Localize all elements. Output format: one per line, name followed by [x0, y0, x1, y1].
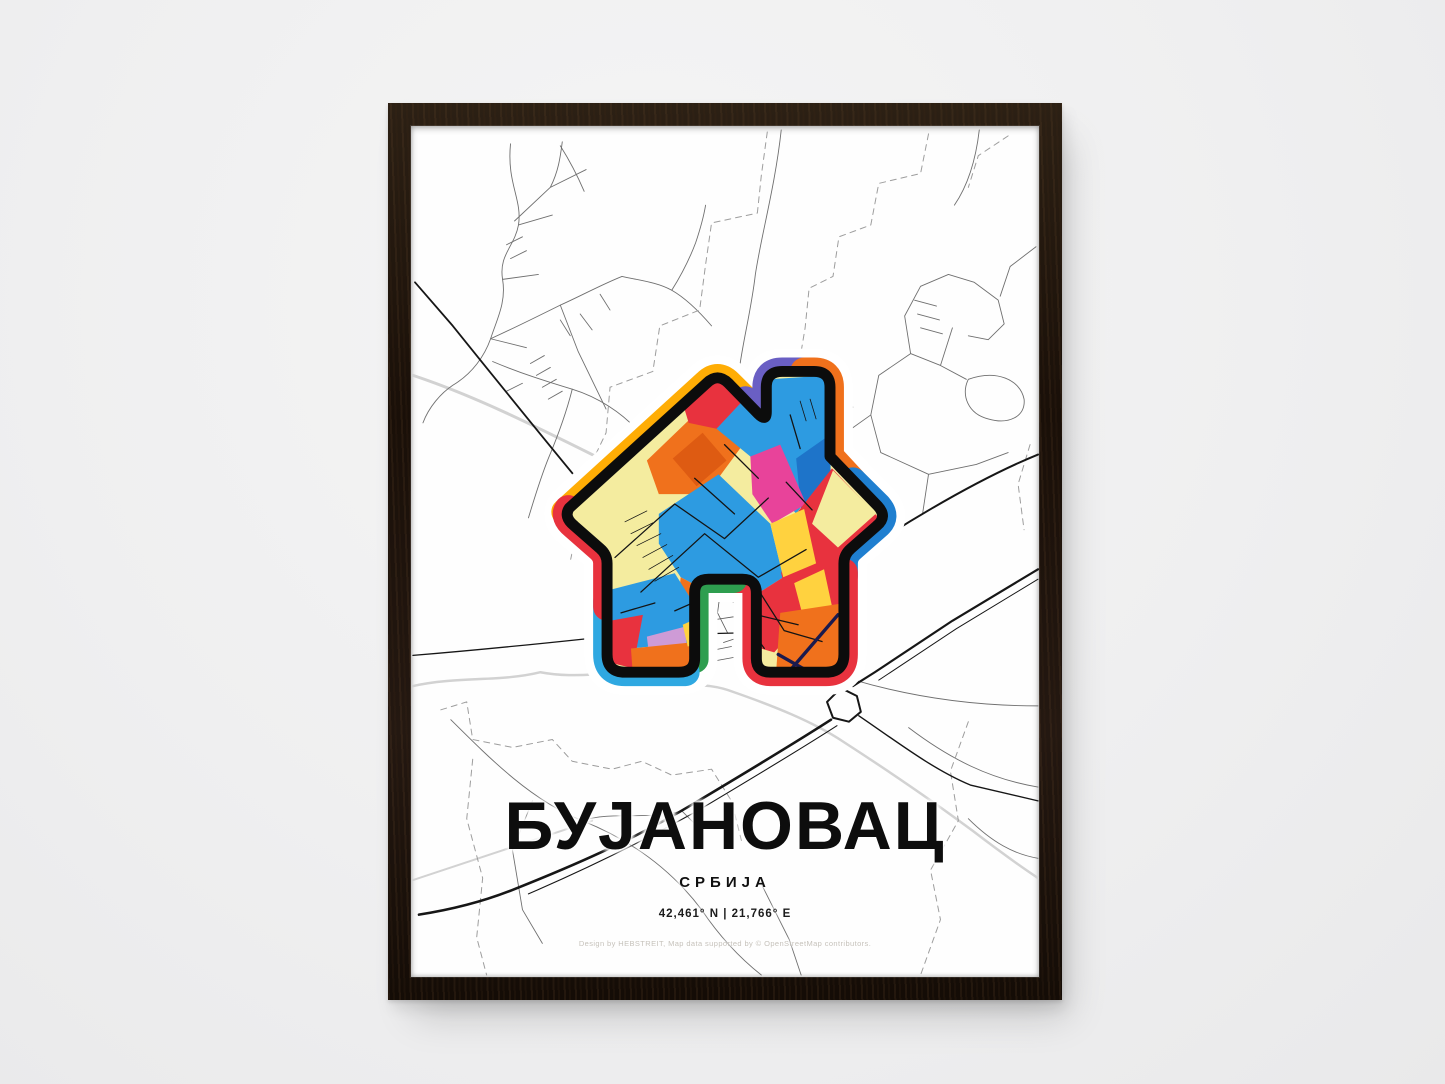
city-title: БУЈАНОВАЦ [411, 792, 1039, 861]
picture-frame: БУЈАНОВАЦ СРБИЈА 42,461° N | 21,766° E D… [388, 103, 1062, 1000]
credit-line: Design by HEBSTREIT, Map data supported … [411, 939, 1039, 948]
wall: БУЈАНОВАЦ СРБИЈА 42,461° N | 21,766° E D… [0, 0, 1445, 1084]
map-poster: БУЈАНОВАЦ СРБИЈА 42,461° N | 21,766° E D… [411, 126, 1039, 977]
country-subtitle: СРБИЈА [411, 874, 1039, 891]
poster-text-block: БУЈАНОВАЦ СРБИЈА 42,461° N | 21,766° E D… [411, 792, 1039, 948]
coordinates-label: 42,461° N | 21,766° E [411, 908, 1039, 920]
